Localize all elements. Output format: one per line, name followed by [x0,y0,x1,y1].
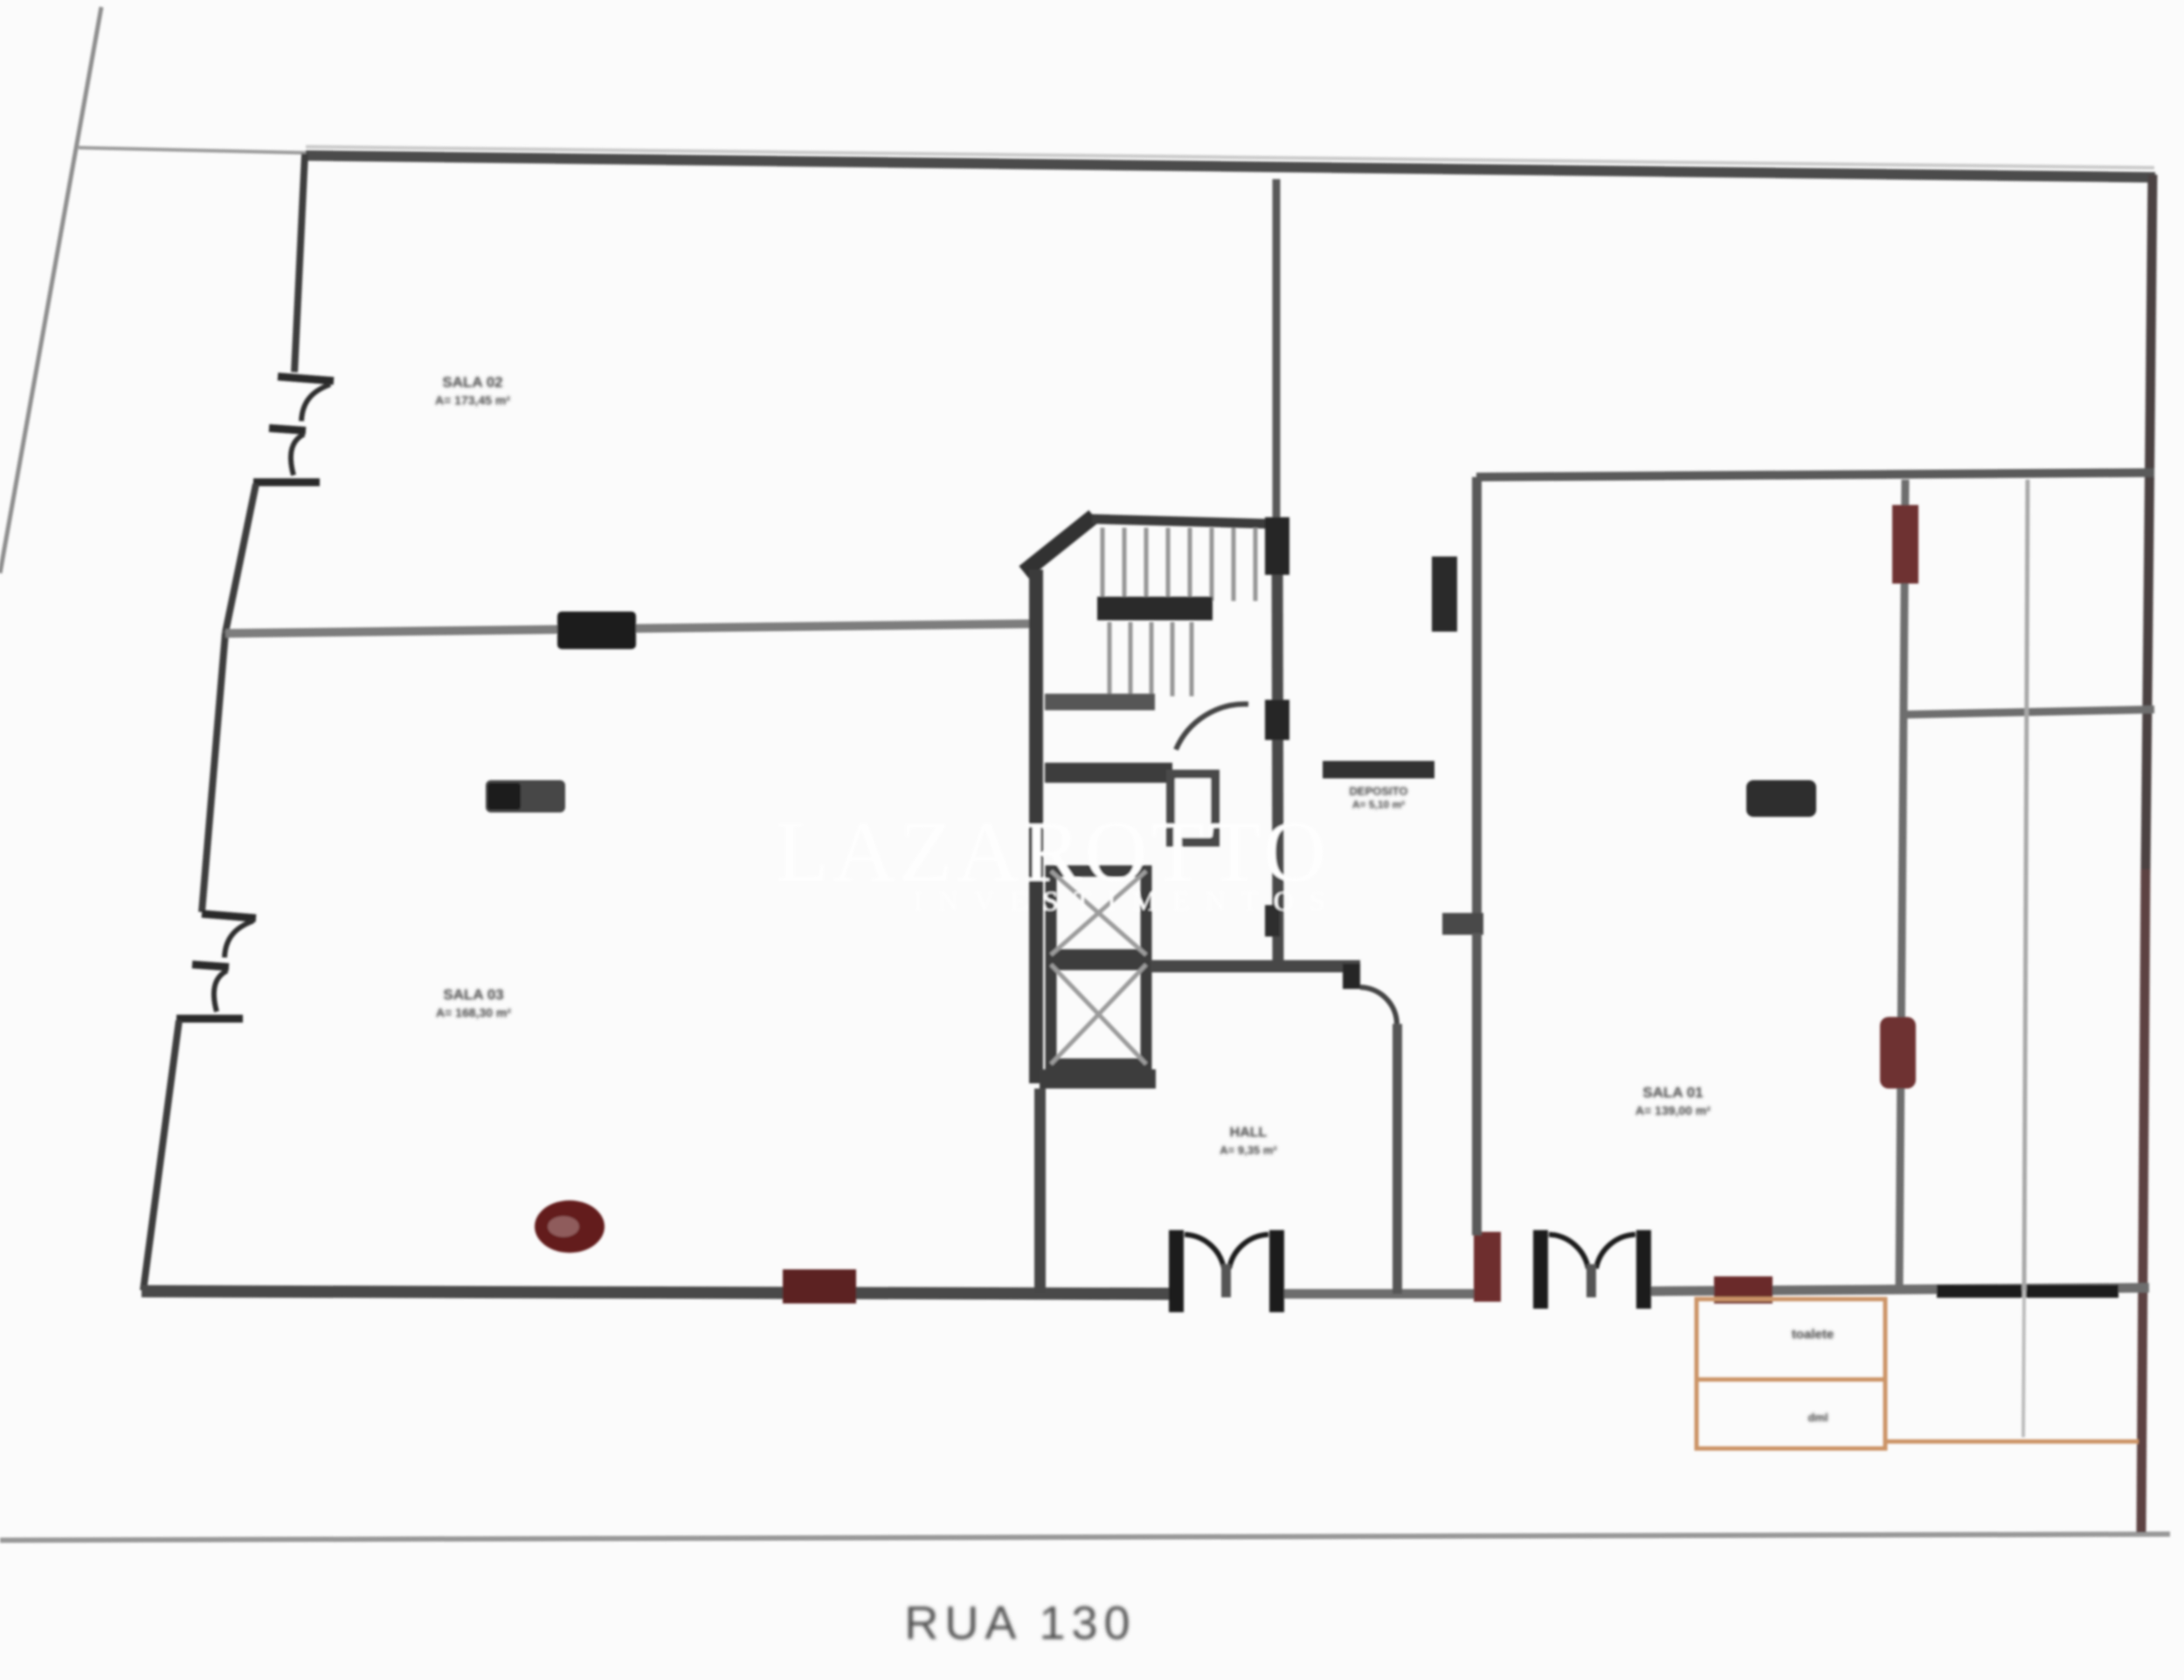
svg-text:DEPOSITO: DEPOSITO [1350,785,1408,798]
svg-text:dml: dml [1807,1411,1828,1424]
svg-text:A= 9,35 m²: A= 9,35 m² [1220,1144,1277,1157]
svg-text:SALA 03: SALA 03 [443,986,503,1003]
svg-text:A= 5,10 m²: A= 5,10 m² [1352,799,1405,811]
svg-text:SALA 01: SALA 01 [1642,1084,1703,1101]
svg-text:A= 173,45 m²: A= 173,45 m² [435,393,510,407]
svg-text:SALA 02: SALA 02 [442,374,502,391]
svg-text:HALL: HALL [1230,1125,1268,1140]
svg-text:toalete: toalete [1792,1327,1834,1342]
svg-text:INVESTIMENTOS: INVESTIMENTOS [913,885,1340,916]
svg-text:A= 168,30 m²: A= 168,30 m² [436,1006,511,1020]
svg-text:A= 139,00 m²: A= 139,00 m² [1635,1103,1711,1117]
svg-text:RUA 130: RUA 130 [904,1597,1136,1649]
